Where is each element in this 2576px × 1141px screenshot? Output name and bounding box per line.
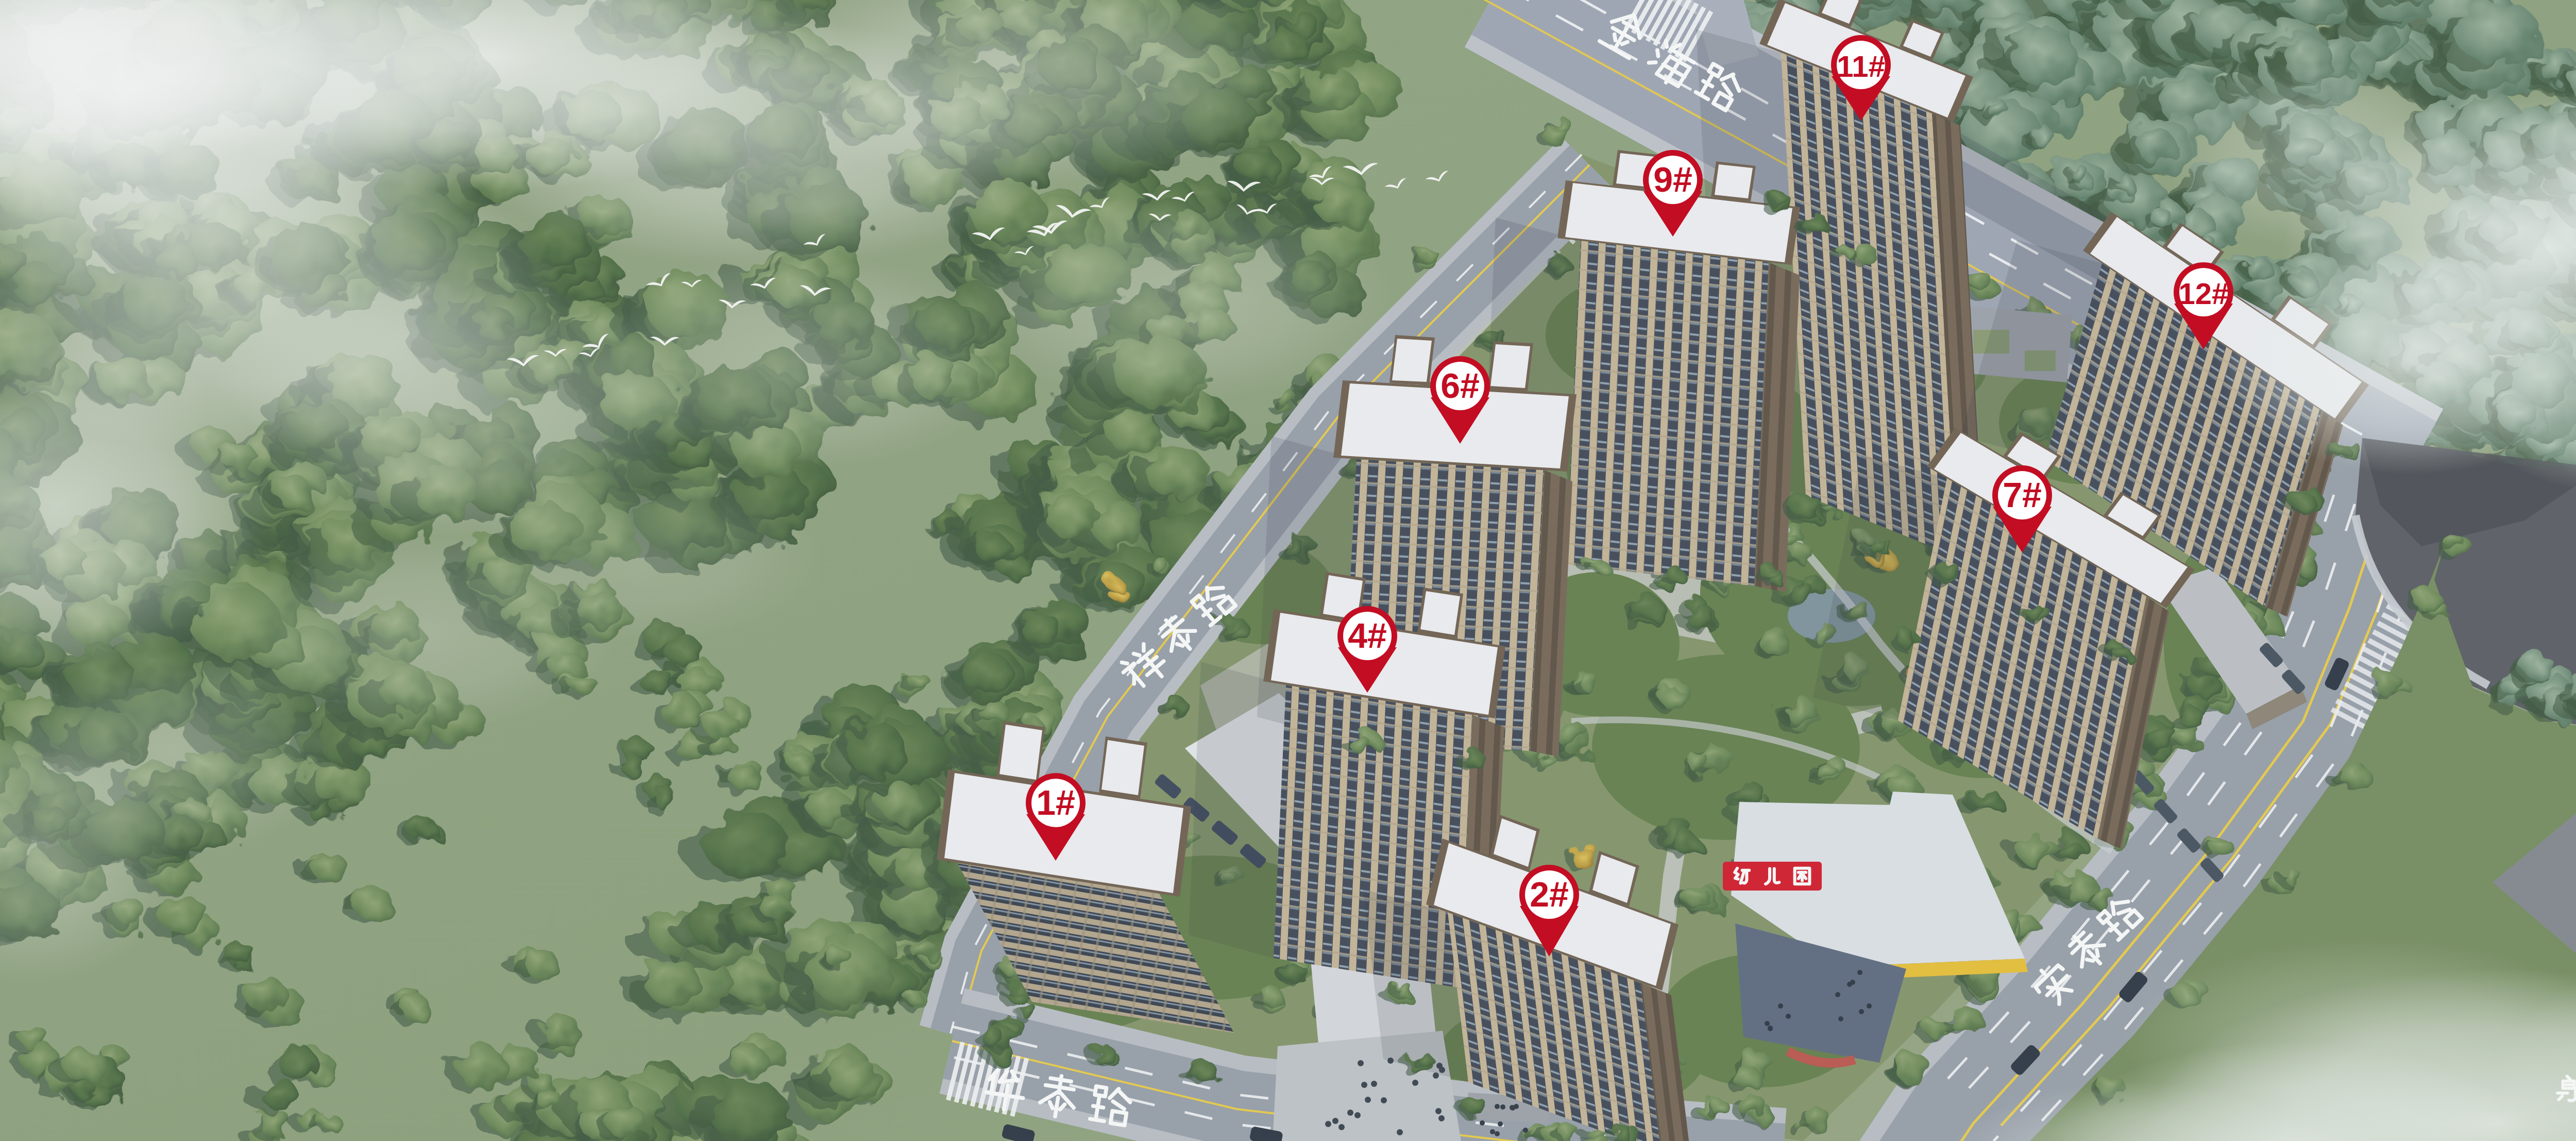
svg-text:9#: 9# [1653,160,1692,199]
svg-text:4#: 4# [1348,616,1387,655]
svg-text:6#: 6# [1440,366,1480,405]
svg-text:12#: 12# [2179,277,2229,310]
svg-text:7#: 7# [2003,475,2042,514]
svg-text:2#: 2# [1530,875,1569,914]
svg-text:1#: 1# [1036,783,1075,822]
svg-text:11#: 11# [1837,49,1885,83]
